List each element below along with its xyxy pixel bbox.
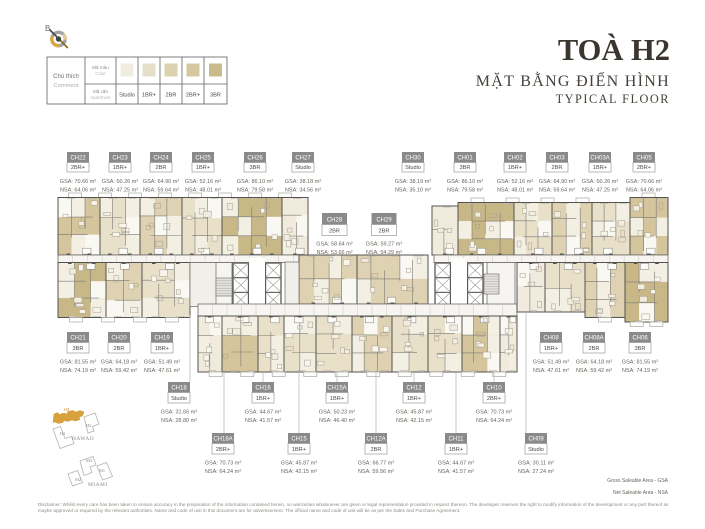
svg-text:NSA: 41.57 m²: NSA: 41.57 m² xyxy=(245,418,281,424)
svg-text:CH23: CH23 xyxy=(112,156,128,162)
svg-text:CH11: CH11 xyxy=(449,437,465,443)
svg-text:1BR+: 1BR+ xyxy=(142,93,156,99)
svg-text:1BR+: 1BR+ xyxy=(508,165,522,171)
svg-text:B: B xyxy=(45,24,50,33)
svg-text:M1: M1 xyxy=(99,468,105,473)
svg-text:GSA: 50.23 m²: GSA: 50.23 m² xyxy=(319,410,356,416)
svg-text:Net Saleable Area - NSA: Net Saleable Area - NSA xyxy=(613,490,669,496)
svg-text:GSA: 66.77 m²: GSA: 66.77 m² xyxy=(358,461,395,467)
svg-text:CH28: CH28 xyxy=(327,218,343,224)
svg-text:GSA: 64.90 m²: GSA: 64.90 m² xyxy=(143,179,180,185)
svg-text:NSA: 54.29 m²: NSA: 54.29 m² xyxy=(366,250,402,256)
svg-text:3BR: 3BR xyxy=(460,165,471,171)
svg-text:GSA: 64.18 m²: GSA: 64.18 m² xyxy=(576,360,613,366)
svg-text:NSA: 74.19 m²: NSA: 74.19 m² xyxy=(622,368,658,374)
svg-text:Studio: Studio xyxy=(119,93,135,99)
svg-text:Mã màu: Mã màu xyxy=(92,65,109,70)
svg-text:M3: M3 xyxy=(86,458,93,463)
svg-text:GSA: 64.18 m²: GSA: 64.18 m² xyxy=(101,360,138,366)
svg-text:CH27: CH27 xyxy=(295,156,311,162)
svg-text:H1: H1 xyxy=(60,431,65,436)
svg-text:CH15A: CH15A xyxy=(327,386,346,392)
svg-text:GSA: 58.64 m²: GSA: 58.64 m² xyxy=(316,242,353,248)
svg-text:NSA: 47.25 m²: NSA: 47.25 m² xyxy=(582,188,618,194)
svg-text:maybe approved or required by: maybe approved or required by the releva… xyxy=(38,508,460,513)
svg-text:GSA: 86.10 m²: GSA: 86.10 m² xyxy=(237,179,274,185)
svg-text:GSA: 70.66 m²: GSA: 70.66 m² xyxy=(626,179,663,185)
svg-text:2BR: 2BR xyxy=(114,346,125,352)
svg-text:H2: H2 xyxy=(86,423,91,428)
svg-text:3BR: 3BR xyxy=(210,93,221,99)
svg-text:CH21: CH21 xyxy=(70,336,86,342)
svg-text:2BR: 2BR xyxy=(589,346,600,352)
svg-text:CH20: CH20 xyxy=(111,336,127,342)
svg-text:2BR+: 2BR+ xyxy=(71,165,85,171)
svg-text:GSA: 38.18 m²: GSA: 38.18 m² xyxy=(285,179,322,185)
svg-text:NSA: 59.56 m²: NSA: 59.56 m² xyxy=(358,469,394,475)
svg-text:2BR+: 2BR+ xyxy=(487,396,501,402)
svg-text:CH10: CH10 xyxy=(486,386,502,392)
svg-text:NSA: 64.24 m²: NSA: 64.24 m² xyxy=(205,469,241,475)
svg-text:CH08A: CH08A xyxy=(584,336,603,342)
svg-text:NSA: 47.25 m²: NSA: 47.25 m² xyxy=(102,188,138,194)
svg-text:NSA: 59.64 m²: NSA: 59.64 m² xyxy=(143,188,179,194)
svg-text:CH03: CH03 xyxy=(549,156,565,162)
svg-text:1BR+: 1BR+ xyxy=(256,396,270,402)
svg-text:NSA: 79.58 m²: NSA: 79.58 m² xyxy=(237,188,273,194)
svg-text:GSA: 38.19 m²: GSA: 38.19 m² xyxy=(395,179,432,185)
svg-text:Studio: Studio xyxy=(171,396,187,402)
svg-text:CH09: CH09 xyxy=(528,437,544,443)
svg-text:NSA: 53.66 m²: NSA: 53.66 m² xyxy=(316,250,352,256)
svg-text:CH05: CH05 xyxy=(636,156,652,162)
svg-text:Mã căn: Mã căn xyxy=(93,89,109,94)
svg-text:3BR: 3BR xyxy=(250,165,261,171)
svg-text:GSA: 52.16 m²: GSA: 52.16 m² xyxy=(185,179,222,185)
svg-text:NSA: 74.19 m²: NSA: 74.19 m² xyxy=(60,368,96,374)
svg-text:GSA: 50.26 m²: GSA: 50.26 m² xyxy=(102,179,139,185)
svg-text:1BR+: 1BR+ xyxy=(155,346,169,352)
svg-text:NSA: 35.10 m²: NSA: 35.10 m² xyxy=(395,188,431,194)
svg-text:CH02: CH02 xyxy=(507,156,523,162)
svg-text:2BR+: 2BR+ xyxy=(216,447,230,453)
svg-text:Gross Saleable Area - GSA: Gross Saleable Area - GSA xyxy=(607,478,669,484)
svg-text:GSA: 31.66 m²: GSA: 31.66 m² xyxy=(161,410,198,416)
svg-text:Studio: Studio xyxy=(405,165,421,171)
svg-text:2BR: 2BR xyxy=(552,165,563,171)
svg-text:GSA: 70.73 m²: GSA: 70.73 m² xyxy=(476,410,513,416)
svg-text:CH16: CH16 xyxy=(255,386,271,392)
svg-text:CH12: CH12 xyxy=(406,386,422,392)
svg-text:GSA: 59.27 m²: GSA: 59.27 m² xyxy=(366,242,403,248)
svg-text:NSA: 64.06 m²: NSA: 64.06 m² xyxy=(60,188,96,194)
svg-text:NSA: 34.56 m²: NSA: 34.56 m² xyxy=(285,188,321,194)
svg-text:CH08: CH08 xyxy=(543,336,559,342)
svg-text:GSA: 70.73 m²: GSA: 70.73 m² xyxy=(205,461,242,467)
svg-text:1BR+: 1BR+ xyxy=(449,447,463,453)
svg-text:GSA: 64.90 m²: GSA: 64.90 m² xyxy=(539,179,576,185)
svg-text:1BR+: 1BR+ xyxy=(593,165,607,171)
svg-text:Color: Color xyxy=(95,71,106,76)
svg-text:2BR+: 2BR+ xyxy=(637,165,651,171)
svg-text:1BR+: 1BR+ xyxy=(544,346,558,352)
svg-text:1BR+: 1BR+ xyxy=(113,165,127,171)
svg-text:1BR+: 1BR+ xyxy=(196,165,210,171)
svg-text:NSA: 42.15 m²: NSA: 42.15 m² xyxy=(281,469,317,475)
svg-text:CH06: CH06 xyxy=(632,336,648,342)
svg-text:GSA: 51.49 m²: GSA: 51.49 m² xyxy=(533,360,570,366)
svg-text:CH25: CH25 xyxy=(195,156,211,162)
svg-text:NSA: 79.58 m²: NSA: 79.58 m² xyxy=(447,188,483,194)
svg-text:NSA: 48.01 m²: NSA: 48.01 m² xyxy=(497,188,533,194)
svg-text:1BR+: 1BR+ xyxy=(330,396,344,402)
svg-text:HAWAII: HAWAII xyxy=(72,436,94,442)
svg-text:M2: M2 xyxy=(75,477,81,482)
svg-text:NSA: 41.57 m²: NSA: 41.57 m² xyxy=(438,469,474,475)
svg-text:Apartment: Apartment xyxy=(90,95,111,100)
svg-text:Disclaimer: Whilst every care: Disclaimer: Whilst every care has been t… xyxy=(38,502,669,507)
svg-text:NSA: 47.61 m²: NSA: 47.61 m² xyxy=(533,368,569,374)
svg-text:Chú thích: Chú thích xyxy=(53,74,79,80)
svg-text:GSA: 45.87 m²: GSA: 45.87 m² xyxy=(396,410,433,416)
svg-text:TOÀ H2: TOÀ H2 xyxy=(558,32,670,67)
svg-text:NSA: 59.64 m²: NSA: 59.64 m² xyxy=(539,188,575,194)
svg-text:3BR: 3BR xyxy=(73,346,84,352)
svg-text:GSA: 50.26 m²: GSA: 50.26 m² xyxy=(582,179,619,185)
svg-text:GSA: 81.55 m²: GSA: 81.55 m² xyxy=(60,360,97,366)
svg-text:CH18: CH18 xyxy=(171,386,187,392)
svg-text:NSA: 64.24 m²: NSA: 64.24 m² xyxy=(476,418,512,424)
svg-text:NSA: 46.40 m²: NSA: 46.40 m² xyxy=(319,418,355,424)
svg-text:GSA: 52.16 m²: GSA: 52.16 m² xyxy=(497,179,534,185)
svg-text:NSA: 64.06 m²: NSA: 64.06 m² xyxy=(626,188,662,194)
svg-text:GSA: 51.49 m²: GSA: 51.49 m² xyxy=(144,360,181,366)
svg-text:2BR+: 2BR+ xyxy=(186,93,200,99)
svg-text:NSA: 27.24 m²: NSA: 27.24 m² xyxy=(518,469,554,475)
svg-text:GSA: 44.67 m²: GSA: 44.67 m² xyxy=(438,461,475,467)
svg-text:Comment: Comment xyxy=(53,83,79,89)
svg-text:CH12A: CH12A xyxy=(366,437,385,443)
svg-text:CH01: CH01 xyxy=(457,156,473,162)
svg-text:2BR: 2BR xyxy=(379,229,390,235)
svg-text:CH29: CH29 xyxy=(376,218,392,224)
svg-text:GSA: 86.10 m²: GSA: 86.10 m² xyxy=(447,179,484,185)
svg-text:1BR+: 1BR+ xyxy=(407,396,421,402)
svg-text:TYPICAL FLOOR: TYPICAL FLOOR xyxy=(556,92,670,106)
svg-text:CH18A: CH18A xyxy=(213,437,232,443)
svg-text:CH30: CH30 xyxy=(405,156,421,162)
svg-text:GSA: 81.55 m²: GSA: 81.55 m² xyxy=(622,360,659,366)
svg-text:GSA: 45.87 m²: GSA: 45.87 m² xyxy=(281,461,318,467)
svg-text:CH15: CH15 xyxy=(291,437,307,443)
svg-text:GSA: 70.66 m²: GSA: 70.66 m² xyxy=(60,179,97,185)
svg-text:2BR: 2BR xyxy=(371,447,382,453)
svg-text:NSA: 42.15 m²: NSA: 42.15 m² xyxy=(396,418,432,424)
svg-text:NSA: 47.61 m²: NSA: 47.61 m² xyxy=(144,368,180,374)
svg-text:NSA: 48.01 m²: NSA: 48.01 m² xyxy=(185,188,221,194)
svg-text:CH22: CH22 xyxy=(70,156,86,162)
svg-text:2BR: 2BR xyxy=(166,93,177,99)
svg-text:CH26: CH26 xyxy=(247,156,263,162)
svg-text:Studio: Studio xyxy=(295,165,311,171)
svg-text:1BR+: 1BR+ xyxy=(292,447,306,453)
svg-text:CH24: CH24 xyxy=(153,156,169,162)
svg-text:MIAMI: MIAMI xyxy=(88,482,108,488)
svg-text:Studio: Studio xyxy=(528,447,544,453)
svg-text:3BR: 3BR xyxy=(635,346,646,352)
svg-text:CH03A: CH03A xyxy=(590,156,609,162)
svg-text:NSA: 59.42 m²: NSA: 59.42 m² xyxy=(576,368,612,374)
svg-text:GSA: 30.11 m²: GSA: 30.11 m² xyxy=(518,461,554,467)
svg-text:NSA: 28.80 m²: NSA: 28.80 m² xyxy=(161,418,197,424)
svg-text:MẶT BẰNG ĐIỂN HÌNH: MẶT BẰNG ĐIỂN HÌNH xyxy=(476,71,670,90)
svg-text:2BR: 2BR xyxy=(329,229,340,235)
svg-text:NSA: 59.42 m²: NSA: 59.42 m² xyxy=(101,368,137,374)
svg-text:GSA: 44.67 m²: GSA: 44.67 m² xyxy=(245,410,282,416)
svg-text:CH19: CH19 xyxy=(154,336,170,342)
svg-text:2BR: 2BR xyxy=(156,165,167,171)
